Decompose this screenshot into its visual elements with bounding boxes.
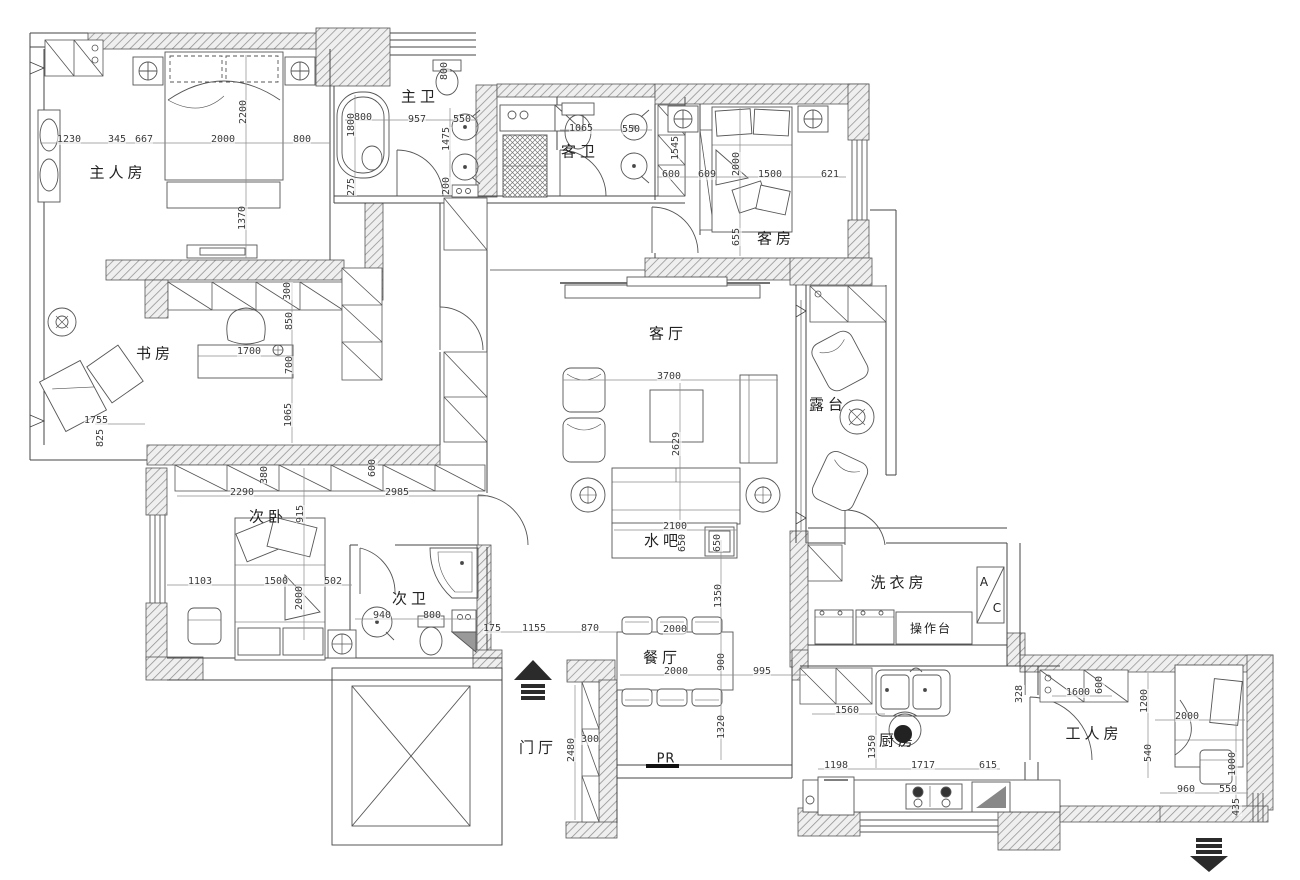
master-closet xyxy=(45,40,103,76)
terrace-cabinet xyxy=(810,286,886,322)
guest-room-light-right xyxy=(798,106,828,132)
entry-shoe-cabinet xyxy=(582,682,599,822)
study-side-table xyxy=(48,308,76,336)
water-bar-counter xyxy=(612,523,737,558)
second-bath-sink xyxy=(362,607,394,640)
second-bath-shower xyxy=(430,548,478,598)
laundry-cabinet xyxy=(808,545,842,581)
second-nightstand xyxy=(188,608,221,644)
furniture xyxy=(38,52,1243,826)
master-tv-console xyxy=(187,245,257,258)
maid-room-door xyxy=(1030,697,1092,760)
living-side-table-left xyxy=(571,478,605,512)
guest-bed xyxy=(712,107,792,232)
laundry-counter xyxy=(896,612,972,644)
pr-underline xyxy=(646,764,679,768)
maid-desk xyxy=(1200,750,1232,784)
washing-machine-2 xyxy=(856,610,894,644)
maid-closet xyxy=(1040,670,1128,702)
second-bedroom-window xyxy=(150,515,165,603)
terrace-chair-2 xyxy=(809,448,871,514)
living-side-table-right xyxy=(746,478,780,512)
second-bath-toilet xyxy=(418,616,444,655)
kitchen-window xyxy=(860,820,998,832)
second-bedroom-door xyxy=(478,495,528,545)
second-bedroom-light xyxy=(328,630,356,658)
master-dresser xyxy=(38,110,60,202)
kitchen-kettle xyxy=(889,712,921,746)
guest-bath-sinks xyxy=(621,110,649,183)
coffee-table xyxy=(650,390,703,442)
guest-room-door xyxy=(652,207,698,253)
guest-room-window xyxy=(852,140,867,220)
master-bed xyxy=(165,52,283,208)
second-bedroom-wardrobe xyxy=(175,465,485,491)
floor-plan: 主人房主卫客卫客房书房客厅露台次卧次卫水吧餐厅门厅洗衣房厨房工人房 123034… xyxy=(0,0,1300,880)
kitchen-sink xyxy=(876,668,950,716)
study-chair xyxy=(227,308,265,344)
living-armchair-1 xyxy=(563,368,605,412)
dining-chairs-top xyxy=(622,617,722,634)
second-bed xyxy=(235,517,325,660)
living-sofa-main xyxy=(612,468,740,524)
washing-machine-1 xyxy=(815,610,853,644)
entrance-arrow-up xyxy=(514,660,552,700)
terrace-table xyxy=(840,400,874,434)
floor-plan-drawing xyxy=(0,0,1300,880)
hall-cabinet xyxy=(444,198,487,442)
bathtub xyxy=(337,92,389,178)
terrace-chair-1 xyxy=(808,328,871,395)
guest-room-light-left xyxy=(668,106,698,132)
elevator xyxy=(352,686,470,826)
master-bath-door xyxy=(397,150,443,196)
kitchen-stove xyxy=(906,784,962,809)
study-door xyxy=(440,307,483,350)
living-armchair-2 xyxy=(563,418,605,462)
kitchen-cabinet xyxy=(800,668,872,704)
second-bath-cabinet xyxy=(452,610,476,652)
living-sofa-side xyxy=(740,375,777,463)
dining-table xyxy=(617,632,733,690)
laundry-door xyxy=(845,510,885,545)
ac-unit xyxy=(977,567,1004,623)
dining-chairs-bottom xyxy=(622,689,722,706)
second-bath-door xyxy=(360,548,395,594)
exit-arrow-down xyxy=(1190,838,1228,872)
master-bath-toilet xyxy=(433,60,461,95)
master-nightstand-left xyxy=(133,57,163,85)
master-nightstand-right xyxy=(285,57,315,85)
study-top-closet xyxy=(168,282,343,310)
study-desk xyxy=(198,345,293,378)
guest-bath-door xyxy=(560,150,606,196)
kitchen-corner-unit xyxy=(972,782,1010,812)
study-tall-cabinet xyxy=(342,268,382,380)
